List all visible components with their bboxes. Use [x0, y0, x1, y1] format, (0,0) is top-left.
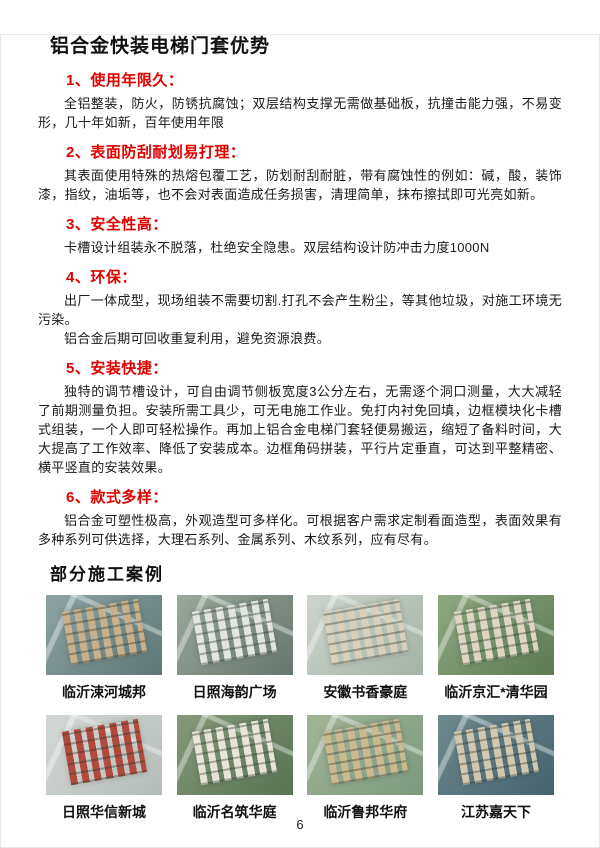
page-number: 6 [0, 817, 600, 832]
advantage-4: 4、环保： 出厂一体成型，现场组装不需要切割.打孔不会产生粉尘，等其他垃圾，对施… [38, 267, 562, 348]
case-item-7: 临沂鲁邦华府 [307, 715, 423, 822]
advantage-5: 5、安装快捷： 独特的调节槽设计，可自由调节侧板宽度3公分左右，无需逐个洞口测量… [38, 358, 562, 477]
advantage-2: 2、表面防刮耐划易打理： 其表面使用特殊的热熔包覆工艺，防划耐刮耐脏，带有腐蚀性… [38, 142, 562, 204]
advantage-6: 6、款式多样： 铝合金可塑性极高，外观造型可多样化。可根据客户需求定制看面造型，… [38, 487, 562, 549]
advantage-1-text: 全铝整装，防火，防锈抗腐蚀；双层结构支撑无需做基础板，抗撞击能力强，不易变形，几… [38, 94, 562, 132]
case-item-1: 临沂涑河城邦 [46, 595, 162, 702]
case-thumbnail-7 [307, 715, 423, 795]
case-thumbnail-6 [177, 715, 293, 795]
advantages-section: 1、使用年限久： 全铝整装，防火，防锈抗腐蚀；双层结构支撑无需做基础板，抗撞击能… [0, 70, 600, 549]
aerial-buildings-graphic [192, 719, 277, 786]
case-caption-1: 临沂涑河城邦 [46, 682, 162, 702]
case-caption-3: 安徽书香豪庭 [307, 682, 423, 702]
advantage-1: 1、使用年限久： 全铝整装，防火，防锈抗腐蚀；双层结构支撑无需做基础板，抗撞击能… [38, 70, 562, 132]
aerial-buildings-graphic [454, 599, 539, 666]
advantage-3-heading: 3、安全性高： [66, 214, 562, 236]
page-title: 铝合金快装电梯门套优势 [50, 34, 600, 60]
advantage-4-heading: 4、环保： [66, 267, 562, 289]
case-item-3: 安徽书香豪庭 [307, 595, 423, 702]
aerial-buildings-graphic [62, 719, 147, 786]
advantage-2-text: 其表面使用特殊的热熔包覆工艺，防划耐刮耐脏，带有腐蚀性的例如：碱，酸，装饰漆，指… [38, 166, 562, 204]
case-thumbnail-2 [177, 595, 293, 675]
advantage-2-heading: 2、表面防刮耐划易打理： [66, 142, 562, 164]
advantage-5-text: 独特的调节槽设计，可自由调节侧板宽度3公分左右，无需逐个洞口测量，大大减轻了前期… [38, 382, 562, 477]
case-caption-4: 临沂京汇*清华园 [438, 682, 554, 702]
advantage-6-heading: 6、款式多样： [66, 487, 562, 509]
case-item-2: 日照海韵广场 [177, 595, 293, 702]
case-item-5: 日照华信新城 [46, 715, 162, 822]
cases-grid: 临沂涑河城邦 日照海韵广场 安徽书香豪庭 临沂京汇*清华园 日照华信新城 临沂名… [0, 587, 600, 835]
cases-section-title: 部分施工案例 [50, 563, 600, 587]
advantage-3-text: 卡槽设计组装永不脱落，杜绝安全隐患。双层结构设计防冲击力度1000N [38, 238, 562, 257]
case-thumbnail-4 [438, 595, 554, 675]
case-item-4: 临沂京汇*清华园 [438, 595, 554, 702]
advantage-4-text-2: 铝合金后期可回收重复利用，避免资源浪费。 [38, 329, 562, 348]
aerial-buildings-graphic [192, 599, 277, 666]
aerial-buildings-graphic [323, 599, 408, 666]
case-thumbnail-5 [46, 715, 162, 795]
case-item-8: 江苏嘉天下 [438, 715, 554, 822]
case-caption-2: 日照海韵广场 [177, 682, 293, 702]
case-thumbnail-3 [307, 595, 423, 675]
case-thumbnail-8 [438, 715, 554, 795]
advantage-4-text: 出厂一体成型，现场组装不需要切割.打孔不会产生粉尘，等其他垃圾，对施工环境无污染… [38, 291, 562, 329]
case-thumbnail-1 [46, 595, 162, 675]
advantage-6-text: 铝合金可塑性极高，外观造型可多样化。可根据客户需求定制看面造型，表面效果有多种系… [38, 511, 562, 549]
aerial-buildings-graphic [62, 599, 147, 666]
advantage-3: 3、安全性高： 卡槽设计组装永不脱落，杜绝安全隐患。双层结构设计防冲击力度100… [38, 214, 562, 257]
case-item-6: 临沂名筑华庭 [177, 715, 293, 822]
aerial-buildings-graphic [323, 719, 408, 786]
advantage-1-heading: 1、使用年限久： [66, 70, 562, 92]
advantage-5-heading: 5、安装快捷： [66, 358, 562, 380]
aerial-buildings-graphic [454, 719, 539, 786]
